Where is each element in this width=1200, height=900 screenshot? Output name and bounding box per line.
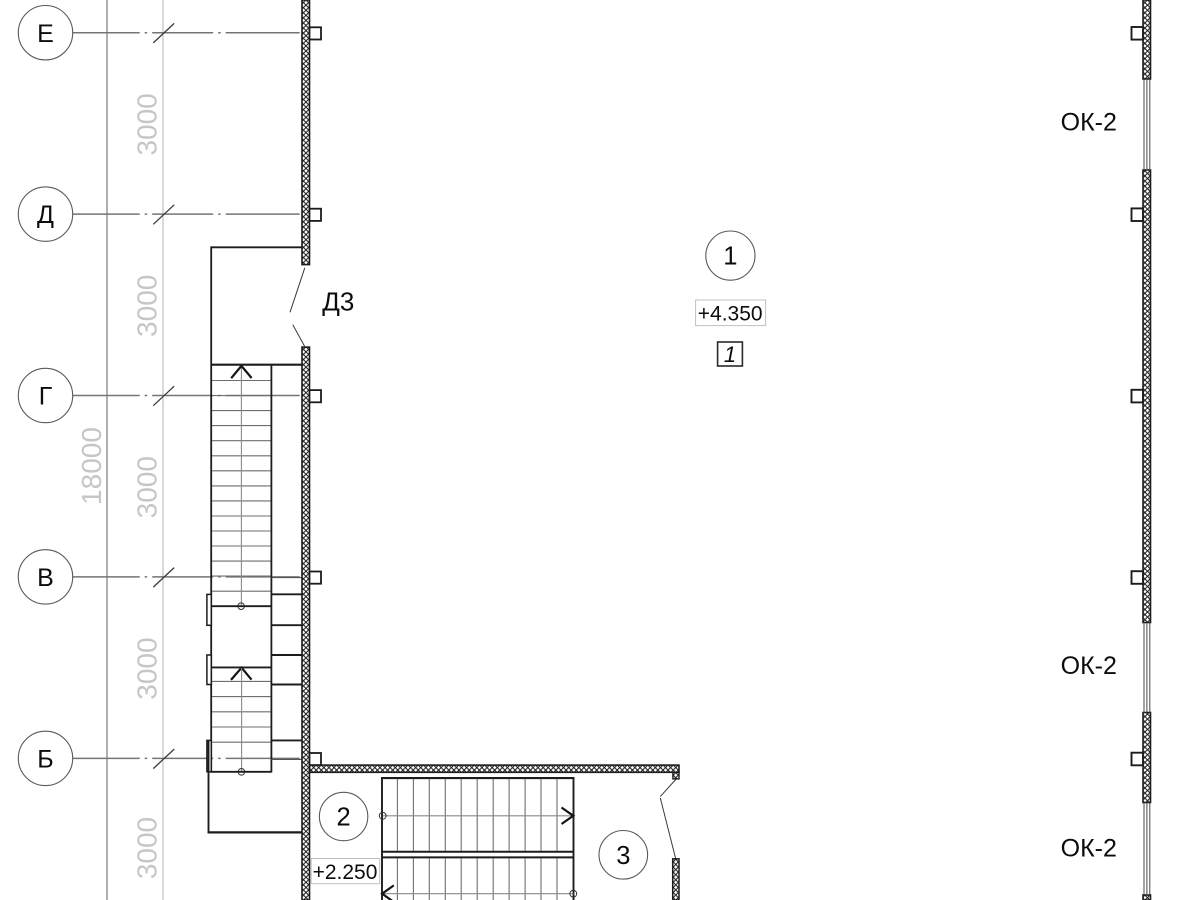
svg-text:ОК-2: ОК-2: [1061, 652, 1117, 680]
svg-text:2: 2: [337, 804, 351, 832]
svg-text:Б: Б: [37, 746, 53, 774]
svg-text:1: 1: [724, 342, 736, 367]
svg-text:3: 3: [616, 842, 630, 870]
svg-text:3000: 3000: [132, 817, 163, 879]
svg-text:3000: 3000: [132, 637, 163, 699]
svg-text:Г: Г: [39, 383, 53, 411]
svg-text:ОК-2: ОК-2: [1061, 835, 1117, 863]
svg-text:+2.250: +2.250: [313, 861, 378, 884]
svg-text:В: В: [37, 564, 54, 592]
svg-text:+4.350: +4.350: [698, 302, 763, 325]
svg-text:Д3: Д3: [322, 286, 354, 316]
svg-text:3000: 3000: [132, 275, 163, 337]
svg-text:Е: Е: [37, 20, 54, 48]
svg-text:18000: 18000: [76, 427, 107, 505]
svg-text:ОК-2: ОК-2: [1061, 109, 1117, 137]
svg-text:3000: 3000: [132, 456, 163, 518]
svg-text:Д: Д: [37, 201, 54, 229]
svg-text:1: 1: [723, 243, 737, 271]
svg-text:3000: 3000: [132, 93, 163, 155]
